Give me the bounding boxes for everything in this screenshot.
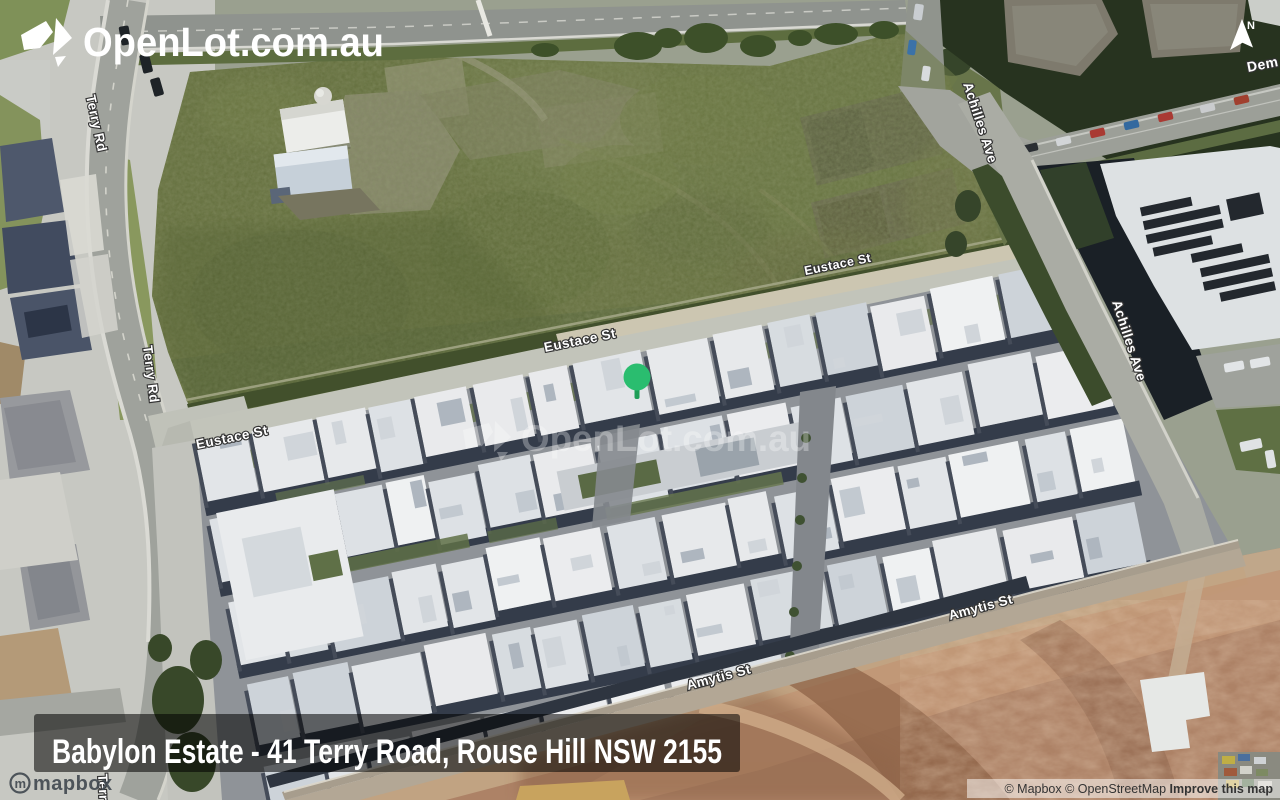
svg-text:Babylon Estate - 41 Terry Road: Babylon Estate - 41 Terry Road, Rouse Hi…	[52, 733, 722, 771]
svg-text:m: m	[15, 776, 27, 791]
svg-text:mapbox: mapbox	[33, 773, 113, 795]
svg-text:OpenLot.com.au: OpenLot.com.au	[83, 19, 384, 65]
svg-text:© Mapbox © OpenStreetMap Impro: © Mapbox © OpenStreetMap Improve this ma…	[1004, 782, 1273, 796]
svg-text:OpenLot.com.au: OpenLot.com.au	[521, 418, 811, 459]
svg-text:N: N	[1247, 20, 1255, 32]
